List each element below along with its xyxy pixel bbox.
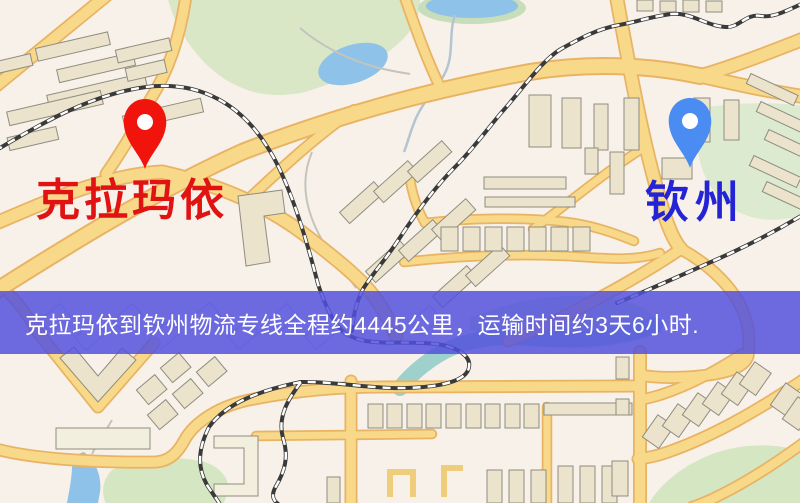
logistics-route-map[interactable]: 克拉玛依到钦州物流专线全程约4445公里，运输时间约3天6小时. 克拉玛依 钦州 [0,0,800,503]
route-info-banner: 克拉玛依到钦州物流专线全程约4445公里，运输时间约3天6小时. [0,291,800,354]
destination-city-label: 钦州 [645,181,745,225]
route-info-text: 克拉玛依到钦州物流专线全程约4445公里，运输时间约3天6小时. [0,306,699,340]
origin-city-label: 克拉玛依 [36,179,228,223]
map-canvas[interactable] [0,0,800,503]
